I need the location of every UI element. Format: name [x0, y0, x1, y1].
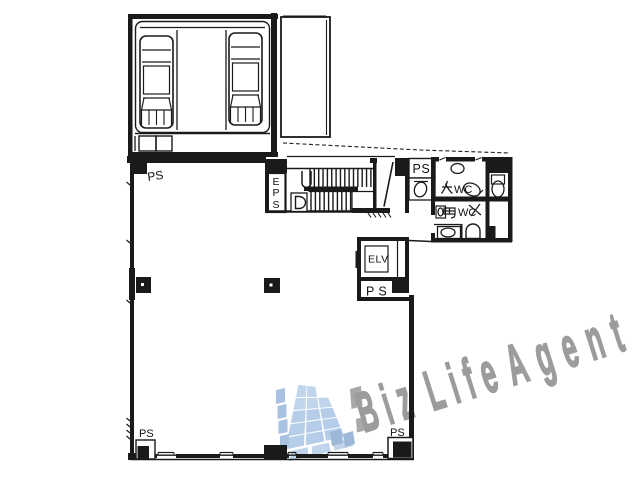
svg-text:ELV: ELV	[368, 254, 389, 266]
svg-text:PS: PS	[139, 428, 154, 440]
svg-text:Biz: Biz	[349, 366, 427, 445]
svg-text:PS: PS	[413, 162, 431, 176]
svg-text:P: P	[272, 187, 279, 199]
svg-text:PS: PS	[390, 427, 405, 439]
svg-text:S: S	[272, 199, 279, 211]
svg-text:PS: PS	[146, 168, 164, 184]
svg-text:WC: WC	[454, 184, 472, 196]
svg-text:PS: PS	[366, 285, 391, 299]
svg-text:Life: Life	[418, 339, 513, 423]
svg-text:Agent: Agent	[498, 299, 640, 398]
